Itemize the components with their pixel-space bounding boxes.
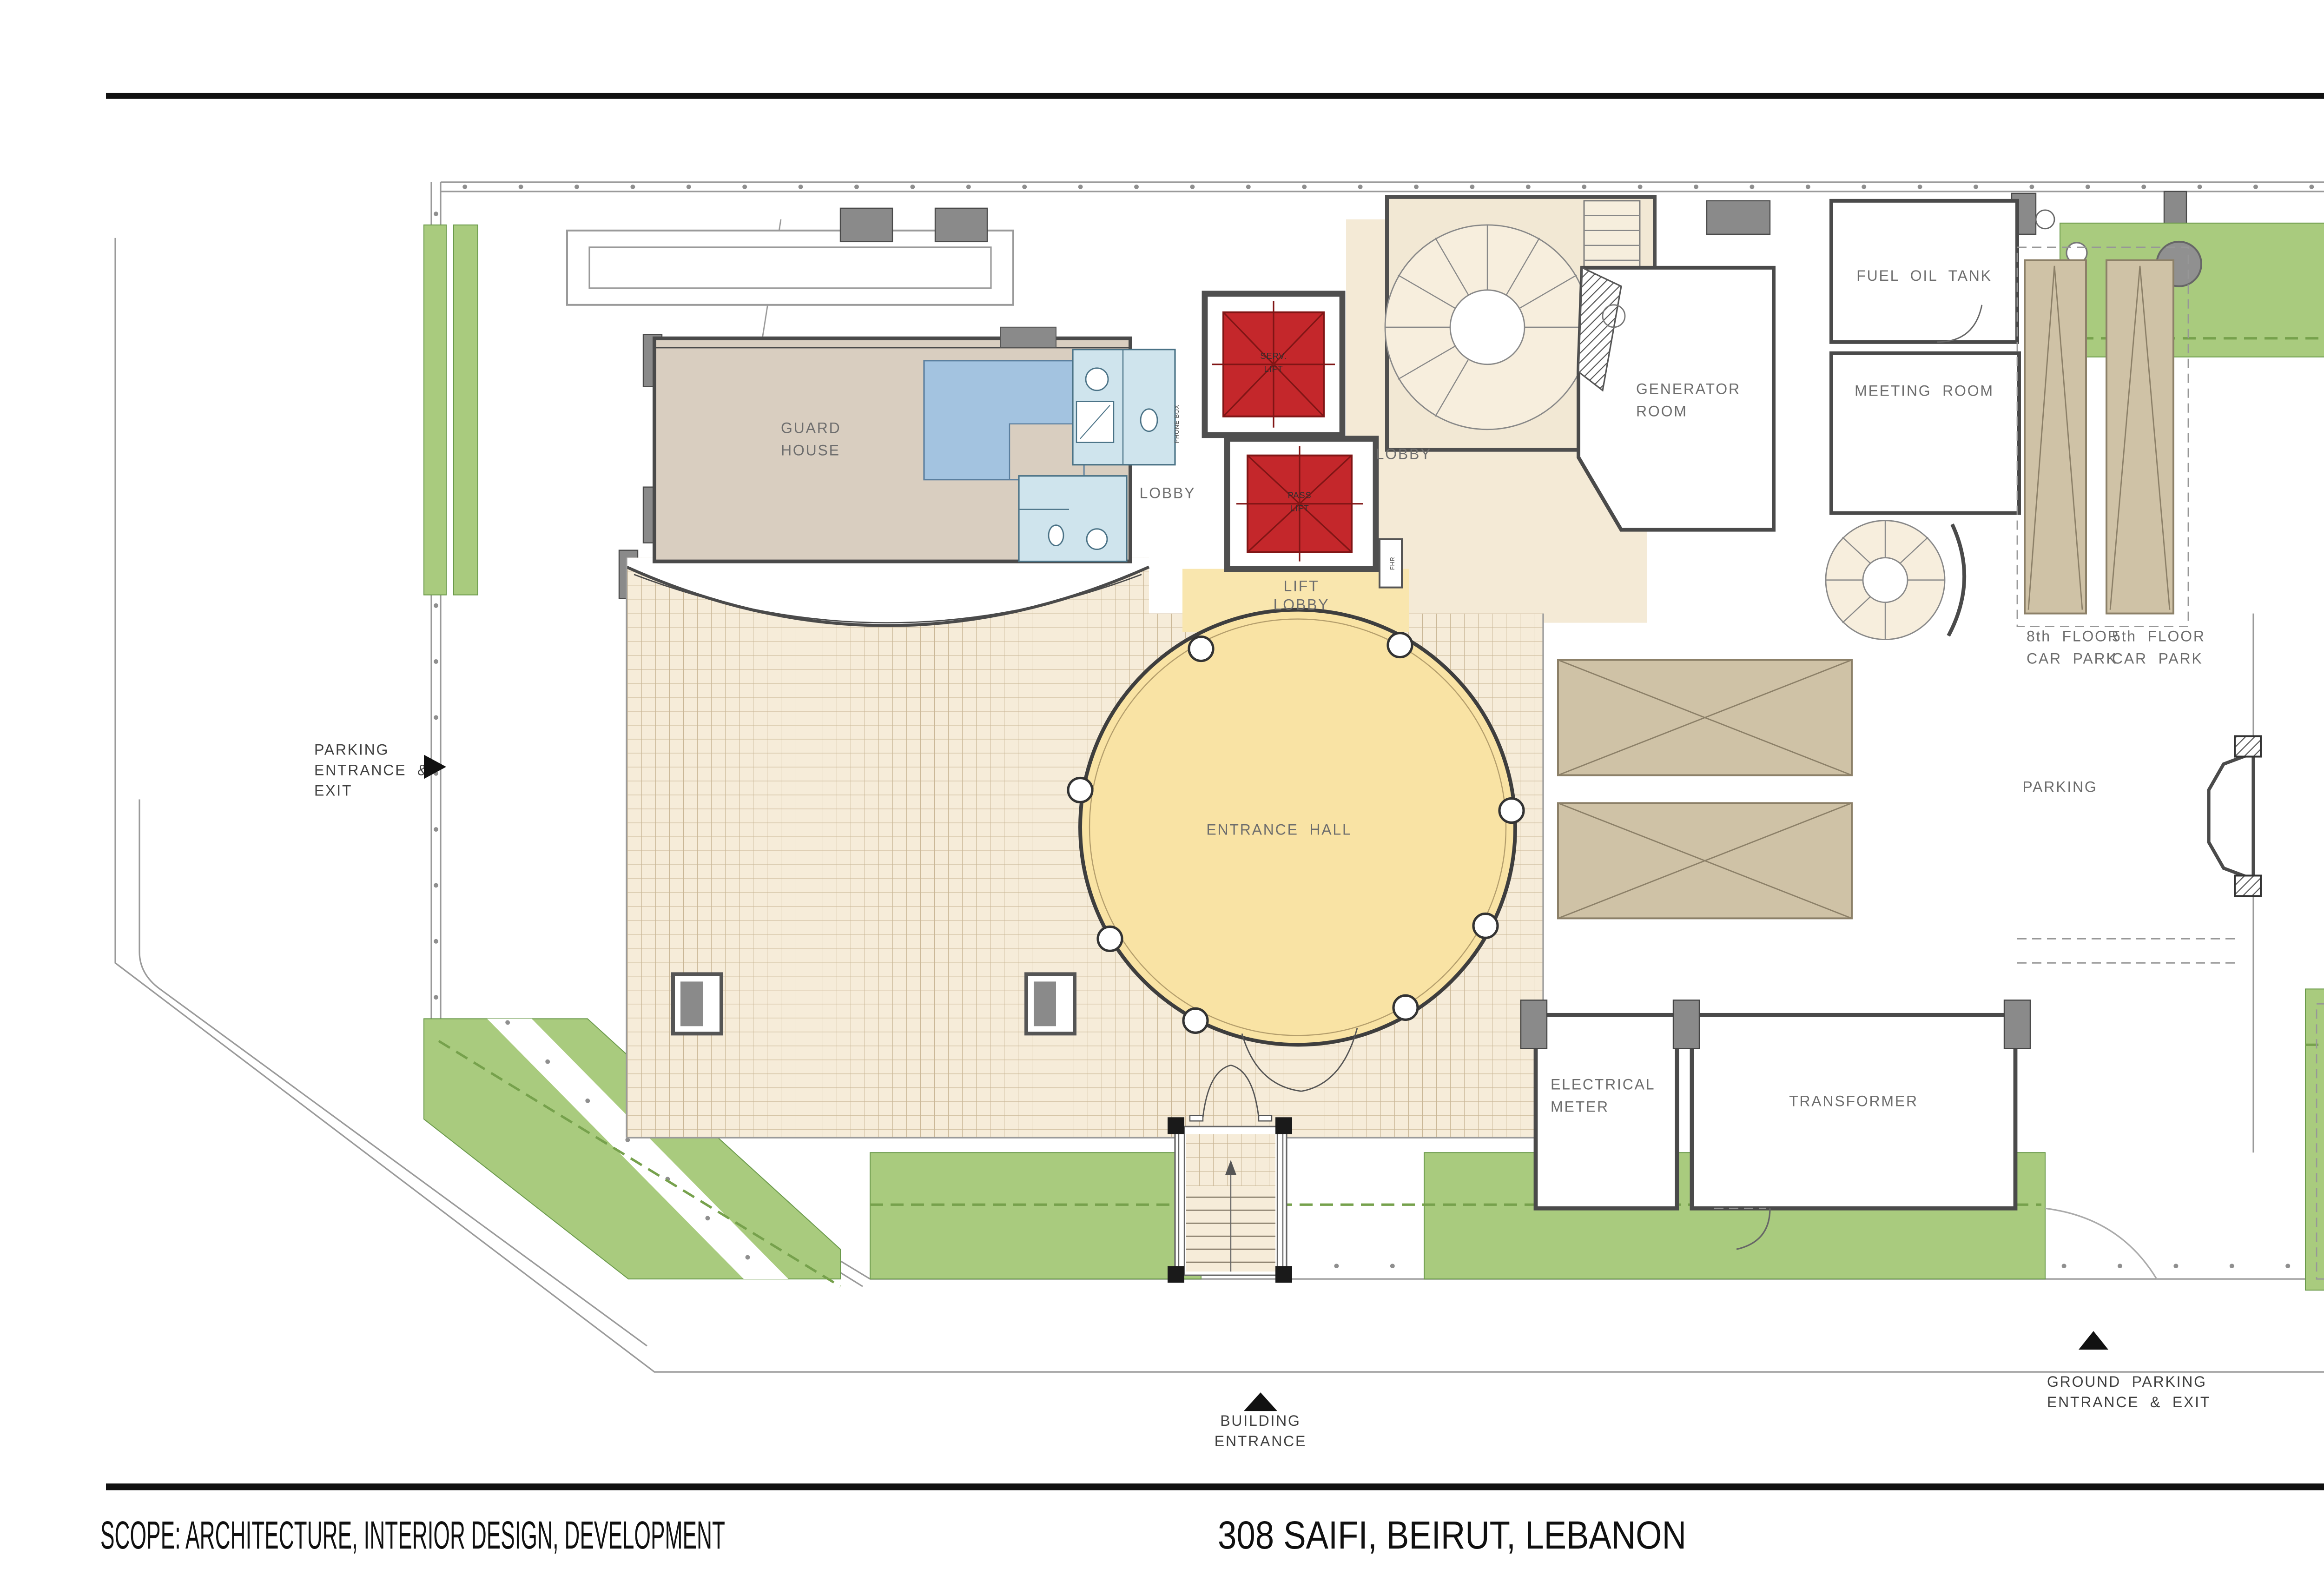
- sink-icon: [1087, 529, 1107, 549]
- svg-text:LIFT: LIFT: [1290, 503, 1309, 513]
- pass-lift-label: PASS: [1288, 490, 1312, 500]
- guard-house-label: GUARD: [781, 420, 841, 437]
- parking-entrance-label: PARKING: [314, 741, 389, 758]
- toilet-icon: [1049, 525, 1063, 546]
- floor-plan-svg: GUARD HOUSE SERV. LIFT PASS LIFT FHR PHO…: [0, 0, 2324, 1569]
- footer-address: 308 SAIFI, BEIRUT, LEBANON: [1218, 1513, 1686, 1557]
- lobby-main-label: LOBBY: [1376, 446, 1432, 463]
- electrical-meter-label: ELECTRICAL: [1551, 1076, 1655, 1092]
- car-park-5-label: 5th FLOOR: [2112, 628, 2205, 645]
- lobby-small-label: LOBBY: [1140, 485, 1196, 502]
- svg-text:LOBBY: LOBBY: [1274, 596, 1330, 613]
- top-rule: [106, 93, 2324, 99]
- building-entrance-arrow-icon: [1244, 1392, 1277, 1411]
- svg-text:HOUSE: HOUSE: [781, 442, 840, 459]
- meeting-room-label: MEETING ROOM: [1855, 383, 1994, 399]
- ground-parking-arrow-icon: [2079, 1331, 2108, 1350]
- sink-icon: [1086, 368, 1108, 391]
- footer: SCOPE: ARCHITECTURE, INTERIOR DESIGN, DE…: [100, 1483, 2324, 1557]
- generator-room: GENERATOR ROOM: [1578, 268, 1774, 530]
- bathroom-1: [1073, 350, 1175, 465]
- parking-label: PARKING: [2022, 778, 2097, 795]
- svg-text:ENTRANCE & EXIT: ENTRANCE & EXIT: [2047, 1394, 2211, 1410]
- footer-scope: SCOPE: ARCHITECTURE, INTERIOR DESIGN, DE…: [100, 1513, 725, 1557]
- svg-text:ENTRANCE &: ENTRANCE &: [314, 762, 429, 779]
- svg-text:CAR PARK: CAR PARK: [2112, 650, 2203, 667]
- svg-text:ENTRANCE: ENTRANCE: [1215, 1433, 1307, 1450]
- svg-text:METER: METER: [1551, 1098, 1609, 1115]
- svg-text:CAR PARK: CAR PARK: [2027, 650, 2118, 667]
- footer-rule: [106, 1483, 2324, 1490]
- svg-text:EXIT: EXIT: [314, 782, 352, 799]
- guard-house: GUARD HOUSE: [654, 327, 1175, 562]
- toilet-icon: [1141, 409, 1157, 431]
- spiral-stair-2: [1826, 521, 1964, 640]
- bay-window: [2209, 736, 2261, 896]
- fhr-label: FHR: [1389, 556, 1396, 570]
- car-stackers-horizontal: [1558, 660, 1852, 919]
- entrance-hall-label: ENTRANCE HALL: [1206, 821, 1352, 838]
- svg-text:LIFT: LIFT: [1264, 364, 1283, 374]
- electrical-meter-room: ELECTRICAL METER: [1536, 1015, 1677, 1208]
- svg-text:ROOM: ROOM: [1636, 403, 1688, 420]
- transformer-label: TRANSFORMER: [1789, 1092, 1918, 1109]
- building-entrance-label: BUILDING: [1220, 1412, 1301, 1429]
- meeting-room: MEETING ROOM: [1831, 353, 2030, 513]
- ground-parking-label: GROUND PARKING: [2047, 1373, 2207, 1390]
- generator-room-label: GENERATOR: [1636, 381, 1741, 397]
- lift-lobby-label: LIFT: [1284, 578, 1320, 595]
- phone-box-label: PHONE BOX: [1173, 404, 1180, 443]
- fuel-oil-tank-label: FUEL OIL TANK: [1856, 267, 1992, 284]
- serv-lift-label: SERV.: [1260, 351, 1287, 361]
- bathroom-2: [1019, 476, 1127, 562]
- car-park-8-label: 8th FLOOR: [2027, 628, 2120, 645]
